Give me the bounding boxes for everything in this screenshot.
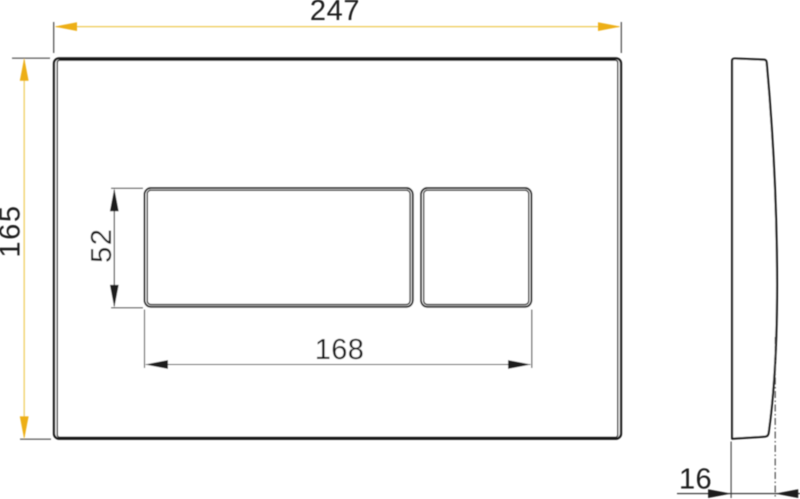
- svg-text:16: 16: [679, 464, 712, 496]
- svg-text:52: 52: [86, 227, 118, 262]
- svg-text:247: 247: [310, 0, 360, 27]
- svg-text:168: 168: [315, 334, 365, 366]
- svg-text:165: 165: [0, 204, 27, 257]
